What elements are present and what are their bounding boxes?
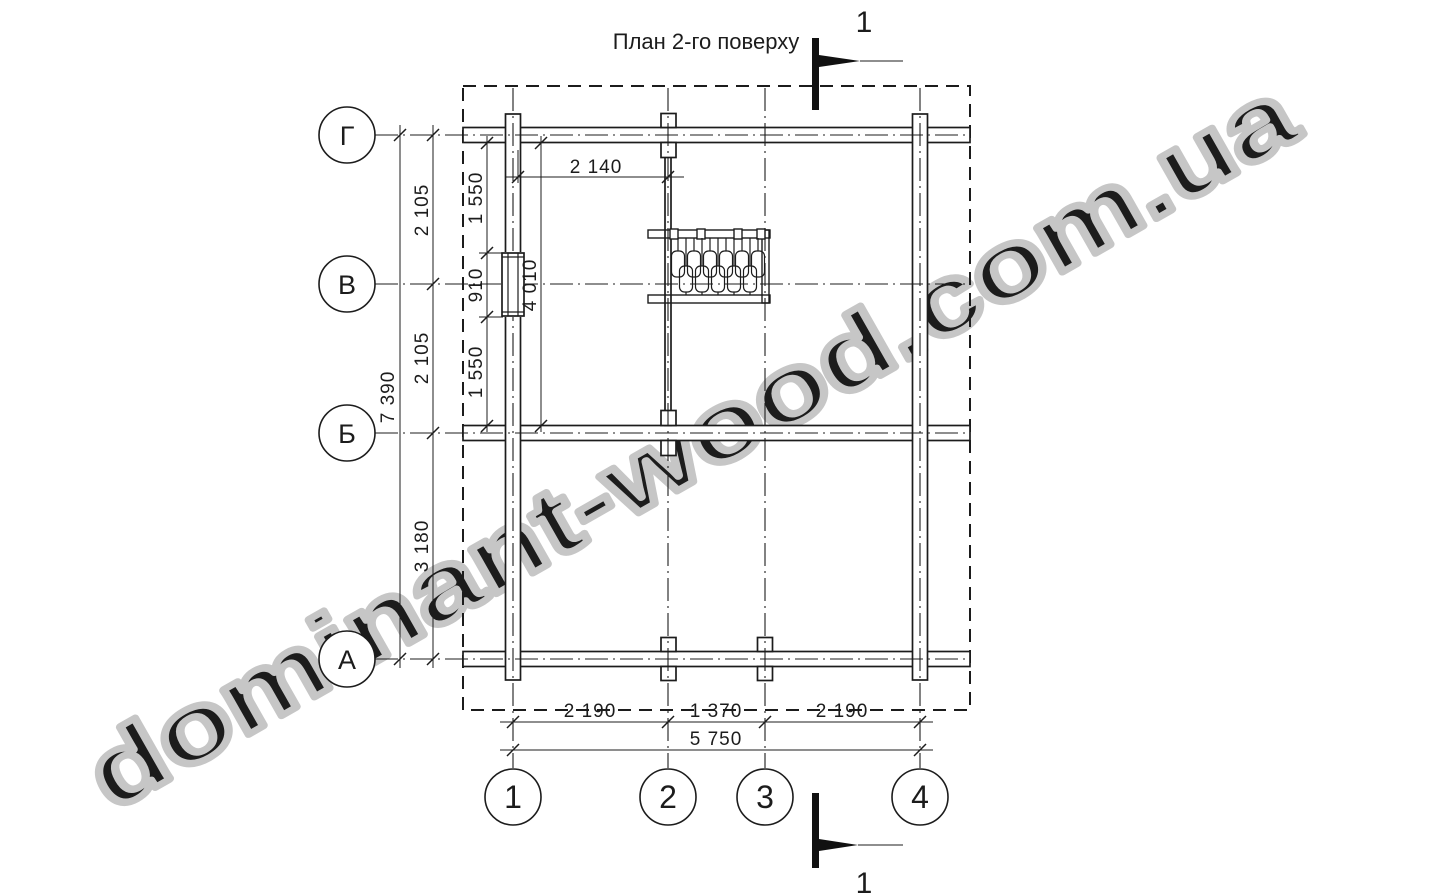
- axis-col-3-label: 3: [756, 779, 774, 815]
- axis-bubble-row-a: А: [319, 631, 375, 687]
- axis-col-4-label: 4: [911, 779, 929, 815]
- section-mark-bottom: 1: [812, 793, 903, 894]
- section-top-label: 1: [856, 6, 873, 39]
- axis-col-2-label: 2: [659, 779, 677, 815]
- drawing-title: План 2-го поверху: [613, 29, 799, 54]
- axis-bubble-row-g: Г: [319, 107, 375, 163]
- floor-plan-drawing: dominant-wood.com.ua: [0, 0, 1440, 894]
- dim-left-overall: 7 390: [378, 371, 399, 424]
- section-mark-top: 1: [812, 6, 903, 110]
- floor-plan-page: dominant-wood.com.ua: [0, 0, 1440, 894]
- dim-left-chain-2: 3 180: [412, 520, 433, 573]
- axis-col-1-label: 1: [504, 779, 522, 815]
- axis-column-bubbles: 1 2 3 4: [485, 769, 948, 825]
- dim-bottom-chain-0: 2 190: [564, 701, 617, 722]
- dim-left-chain-0: 2 105: [412, 184, 433, 237]
- axis-bubble-col-4: 4: [892, 769, 948, 825]
- dim-top-inner: 2 140: [570, 157, 623, 178]
- axis-row-v-label: В: [338, 270, 356, 300]
- dim-inner-overall: 4 010: [520, 259, 541, 312]
- axis-row-g-label: Г: [340, 121, 355, 151]
- balusters-bottom-row: [680, 238, 757, 295]
- axis-bubble-row-v: В: [319, 256, 375, 312]
- dim-bottom-chain-1: 1 370: [690, 701, 743, 722]
- dim-bottom-chain-2: 2 190: [816, 701, 869, 722]
- dim-inner-chain-0: 1 550: [466, 172, 487, 225]
- axis-bubble-row-b: Б: [319, 405, 375, 461]
- axis-bubble-col-3: 3: [737, 769, 793, 825]
- dim-inner-chain-1: 910: [466, 268, 487, 303]
- axis-row-b-label: Б: [338, 419, 356, 449]
- axis-bubble-col-2: 2: [640, 769, 696, 825]
- axis-bubble-col-1: 1: [485, 769, 541, 825]
- axis-row-a-label: А: [338, 645, 356, 675]
- dim-bottom-overall: 5 750: [690, 729, 743, 750]
- dim-inner-chain-2: 1 550: [466, 346, 487, 399]
- dim-left-chain-1: 2 105: [412, 332, 433, 385]
- section-bottom-label: 1: [856, 867, 873, 894]
